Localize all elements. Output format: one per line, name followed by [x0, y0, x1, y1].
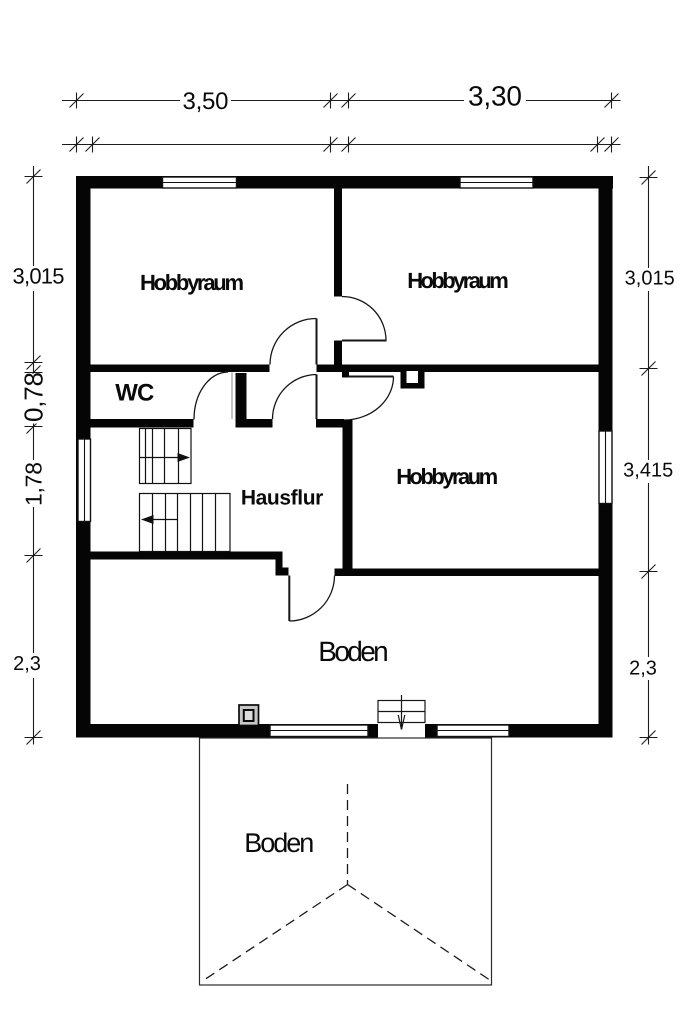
svg-text:3,30: 3,30: [468, 81, 522, 112]
svg-text:3,015: 3,015: [625, 268, 675, 290]
svg-text:3,415: 3,415: [623, 460, 673, 482]
svg-text:3,015: 3,015: [13, 264, 65, 289]
svg-text:1,78: 1,78: [21, 462, 47, 506]
svg-text:Hobbyraum: Hobbyraum: [140, 270, 244, 295]
svg-text:2,3: 2,3: [629, 658, 657, 680]
svg-text:WC: WC: [115, 380, 154, 407]
svg-text:Boden: Boden: [244, 828, 314, 858]
svg-text:3,50: 3,50: [183, 88, 229, 115]
svg-text:Hausflur: Hausflur: [241, 487, 324, 510]
svg-text:Hobbyraum: Hobbyraum: [396, 464, 498, 489]
svg-text:Hobbyraum: Hobbyraum: [407, 268, 509, 293]
svg-text:Boden: Boden: [318, 636, 389, 667]
svg-text:0,78: 0,78: [19, 372, 49, 422]
svg-text:2,3: 2,3: [13, 653, 41, 675]
